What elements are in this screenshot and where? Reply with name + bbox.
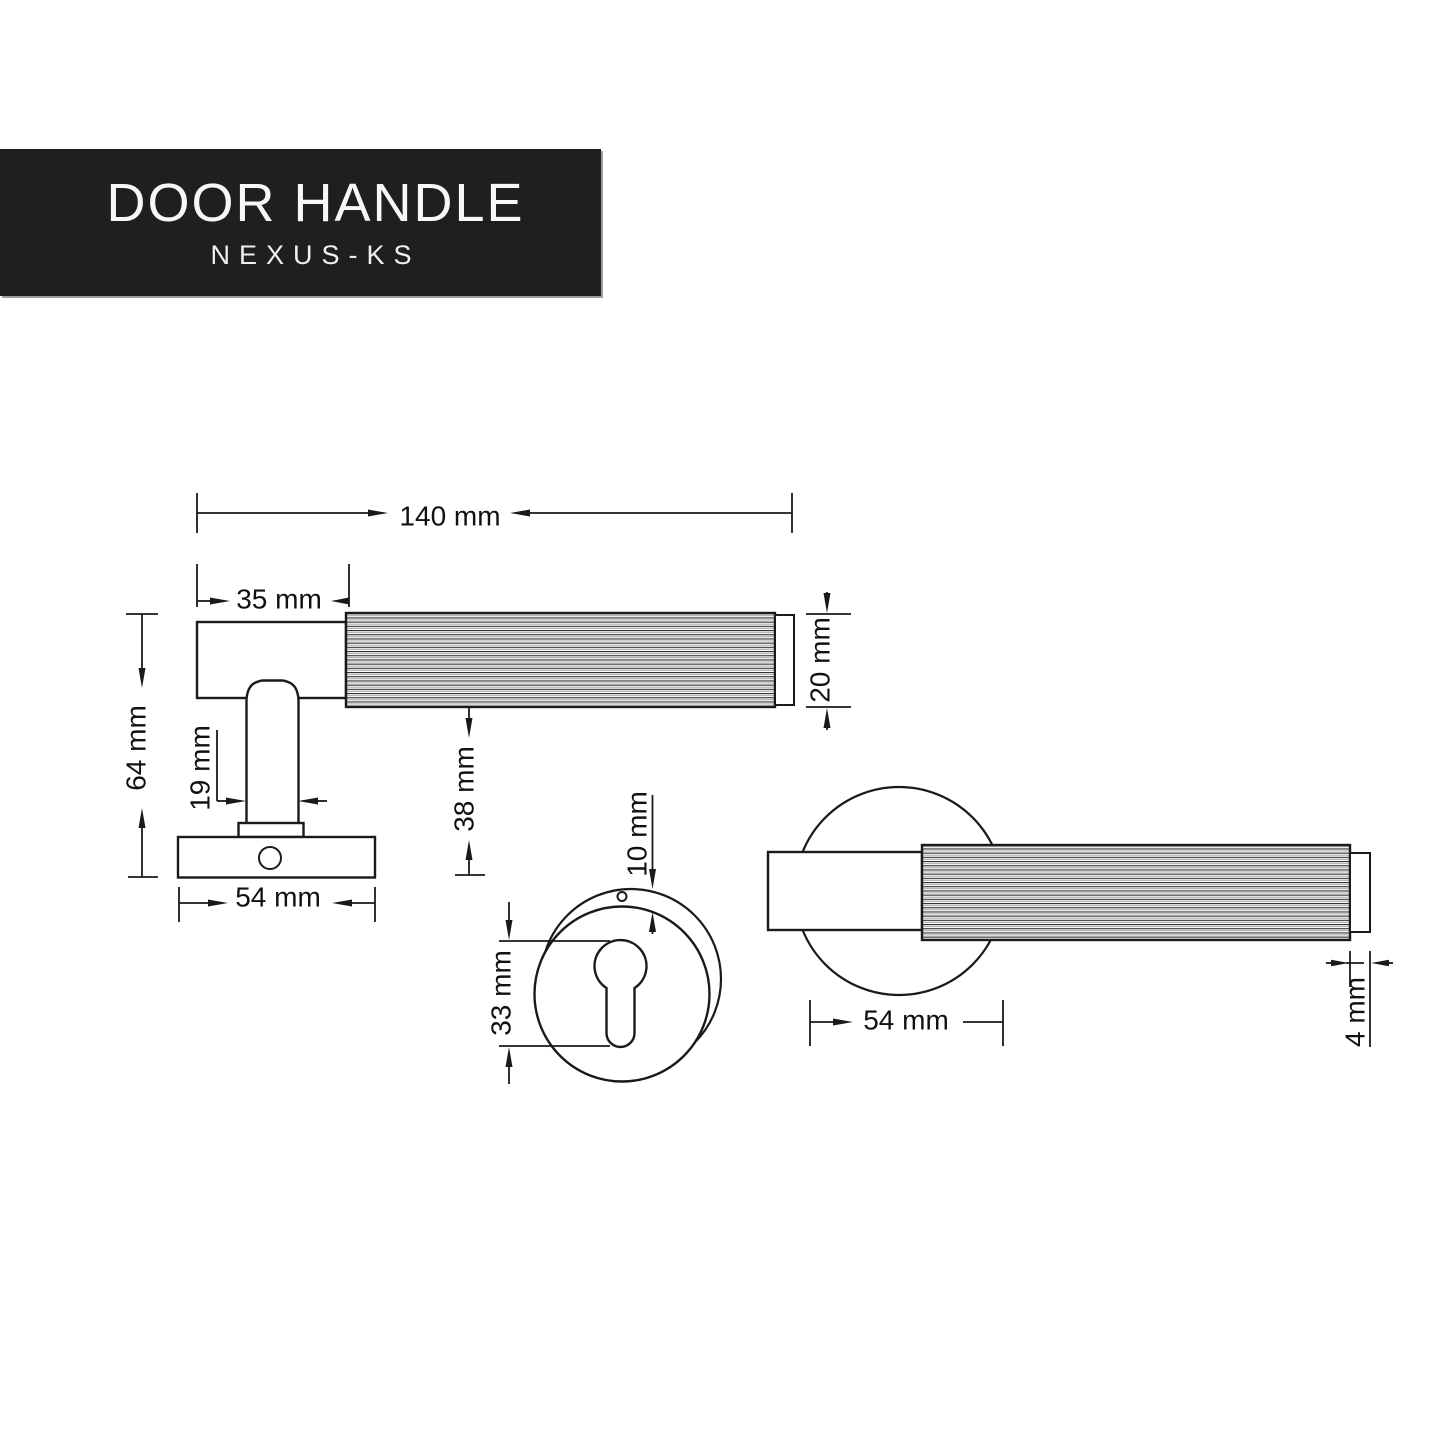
dim-label-rose-diameter-side: 54 mm	[235, 882, 321, 913]
neck-collar-side	[239, 823, 304, 837]
dim-rose-diameter-plan: 54 mm	[810, 1000, 1003, 1046]
dim-underside-offset: 38 mm	[449, 707, 486, 875]
arrow-down-icon	[139, 668, 146, 688]
handle-end-cap-plan	[1350, 853, 1370, 932]
dim-label-head-length: 35 mm	[236, 584, 322, 615]
arrow-left-icon	[332, 900, 352, 907]
handle-head-plan	[768, 852, 922, 930]
arrow-left-icon	[1371, 960, 1389, 966]
arrow-up-icon	[466, 840, 473, 860]
dim-label-underside-offset: 38 mm	[449, 746, 480, 832]
handle-grip-knurled-side	[346, 613, 775, 707]
dim-label-grip-diameter: 20 mm	[805, 617, 836, 703]
dim-rose-diameter-side: 54 mm	[179, 882, 375, 923]
arrow-right-icon	[1331, 960, 1349, 966]
handle-end-cap-side	[775, 615, 794, 705]
dim-label-rose-diameter-plan: 54 mm	[863, 1005, 949, 1036]
escutcheon-pin-hole	[618, 892, 627, 901]
dim-label-total-length: 140 mm	[399, 501, 500, 532]
dim-label-rim-offset: 10 mm	[622, 791, 653, 877]
dim-grip-diameter: 20 mm	[805, 592, 852, 730]
dim-label-neck-width: 19 mm	[185, 725, 216, 811]
dim-cap-length: 4 mm	[1326, 951, 1393, 1047]
side-view	[178, 613, 794, 878]
arrow-down-icon	[824, 593, 831, 613]
arrow-up-icon	[824, 708, 831, 728]
screw-hole-side	[259, 847, 281, 869]
arrow-down-icon	[506, 920, 513, 940]
arrow-left-icon	[510, 510, 530, 517]
arrow-down-icon	[466, 718, 473, 738]
dim-label-side-height: 64 mm	[121, 705, 152, 791]
arrow-right-icon	[368, 510, 388, 517]
drawing-canvas: DOOR HANDLE NEXUS-KS 140 mm	[0, 0, 1445, 1445]
dim-label-cap-length: 4 mm	[1340, 977, 1371, 1047]
dim-head-length: 35 mm	[197, 564, 349, 615]
dim-side-height: 64 mm	[121, 614, 159, 877]
handle-grip-knurled-plan	[922, 845, 1350, 940]
arrow-right-icon	[208, 900, 228, 907]
arrow-right-icon	[210, 598, 230, 605]
arrow-up-icon	[139, 808, 146, 828]
technical-drawing: 140 mm 35 mm 64 mm	[0, 0, 1445, 1445]
dim-label-keyhole-height: 33 mm	[486, 950, 517, 1036]
arrow-left-icon	[331, 598, 349, 605]
arrow-up-icon	[506, 1047, 513, 1067]
escutcheon-view	[535, 889, 722, 1082]
handle-neck-side	[247, 681, 299, 839]
plan-view	[768, 787, 1370, 995]
dim-total-length: 140 mm	[197, 493, 792, 533]
arrow-left-icon	[298, 798, 318, 805]
arrow-right-icon	[833, 1019, 853, 1026]
arrow-right-icon	[226, 798, 246, 805]
